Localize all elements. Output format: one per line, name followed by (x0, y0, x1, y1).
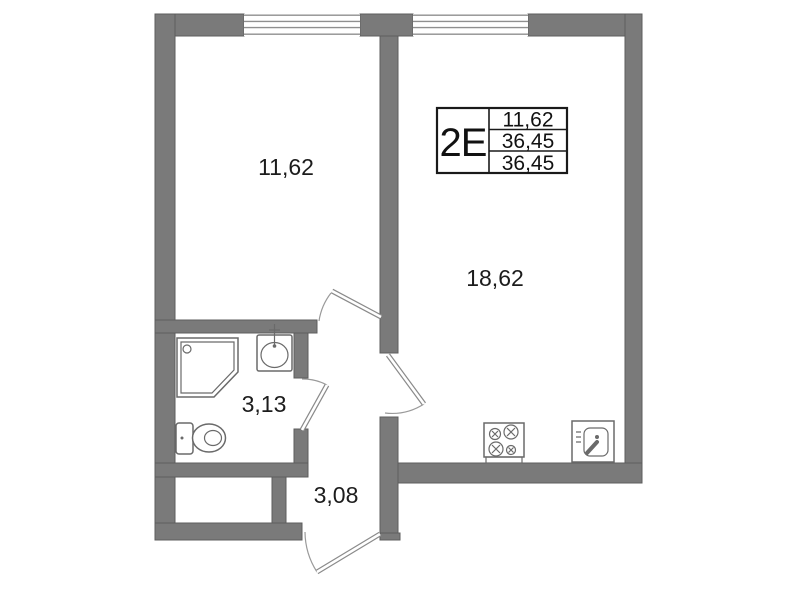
area-label-bathroom: 3,13 (242, 391, 287, 417)
door-leaf-inner (332, 291, 381, 317)
shower-outer (177, 338, 238, 397)
toilet-button (181, 437, 184, 440)
wall-right-outer (625, 14, 642, 483)
door-swing-arc (302, 379, 327, 385)
wall-closet-right (272, 477, 286, 523)
table-row-total-area-1: 36,45 (502, 130, 555, 153)
stove-base (486, 457, 522, 463)
kitchen-sink-icon (572, 421, 614, 462)
wall-bottom-hallway (155, 523, 302, 540)
window-opening (244, 14, 360, 36)
floor-plan-page: 2Е 11,62 36,45 36,45 11,62 18,62 3,13 3,… (0, 0, 799, 600)
window-2 (413, 14, 528, 36)
door-swing-arc (385, 404, 424, 413)
wall-divider-upper (380, 36, 398, 353)
floor-plan: 2Е 11,62 36,45 36,45 11,62 18,62 3,13 3,… (0, 0, 799, 600)
table-row-living-area: 11,62 (503, 109, 554, 132)
bathroom-door (302, 379, 327, 430)
door-leaf-inner (317, 534, 380, 572)
area-label-hallway: 3,08 (314, 482, 359, 508)
wall-left-outer (155, 14, 175, 540)
wall-bathroom-bottom (155, 463, 308, 477)
sink-drain-dot (595, 435, 599, 439)
entrance-door (305, 532, 380, 572)
wall-bottom-living (380, 463, 642, 483)
wall-bedroom-bottom (155, 320, 317, 333)
toilet-tank (176, 423, 193, 454)
washbasin-faucet-dot (273, 344, 277, 348)
door-leaf-inner (388, 355, 424, 404)
window-opening (413, 14, 528, 36)
wall-entry-stub (380, 533, 400, 540)
window-1 (244, 14, 360, 36)
toilet-bowl (193, 424, 226, 452)
toilet-icon (176, 423, 226, 454)
door-swing-arc (319, 293, 331, 321)
unit-type-label: 2Е (440, 121, 487, 165)
area-label-bedroom: 11,62 (258, 154, 314, 180)
wall-divider-lower (380, 417, 398, 540)
unit-info-table: 2Е 11,62 36,45 36,45 (437, 108, 567, 175)
wall-bathroom-right-lower (294, 429, 308, 465)
bedroom-door (319, 291, 381, 321)
door-swing-arc (305, 532, 317, 572)
shower-icon (177, 338, 238, 397)
wall-top-middle-pier (360, 14, 413, 36)
stove-icon (484, 423, 524, 463)
table-row-total-area-2: 36,45 (502, 152, 555, 175)
living-room-door (385, 355, 424, 413)
wall-bathroom-right-upper (294, 333, 308, 378)
door-leaf-inner (302, 385, 327, 430)
walls (155, 14, 642, 540)
area-label-living-kitchen: 18,62 (466, 265, 524, 291)
